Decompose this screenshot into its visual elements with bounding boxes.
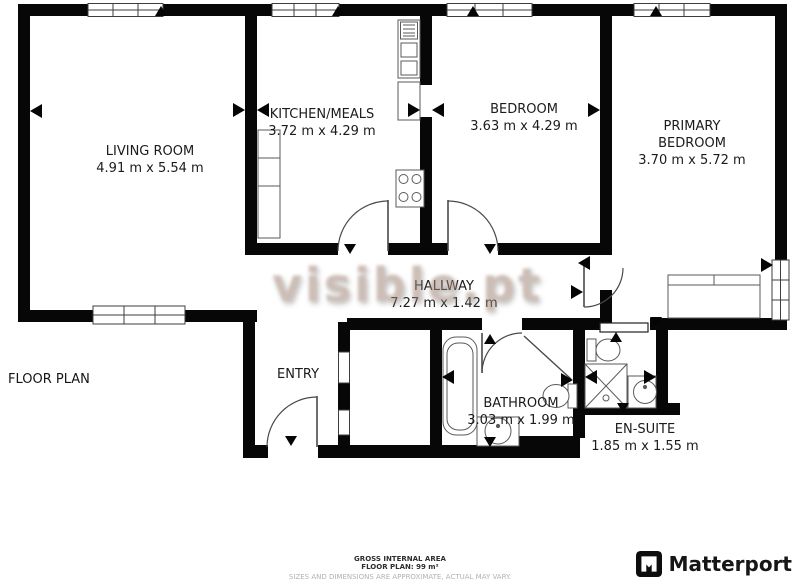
floor-plan-page: LIVING ROOM 4.91 m x 5.54 m KITCHEN/MEAL… — [0, 0, 800, 587]
room-name: PRIMARY BEDROOM — [658, 119, 726, 151]
room-name: EN-SUITE — [615, 422, 675, 437]
door-ensuite-slider — [600, 323, 648, 332]
floor-plan-area-value: FLOOR PLAN: 99 m² — [289, 563, 511, 571]
floor-plan-title: FLOOR PLAN — [8, 372, 90, 387]
disclaimer-text: SIZES AND DIMENSIONS ARE APPROXIMATE, AC… — [289, 573, 511, 582]
room-dims: 3.70 m x 5.72 m — [632, 152, 752, 169]
room-label-entry: ENTRY — [258, 366, 338, 383]
kitchen-sink-icon — [398, 20, 420, 78]
floor-plan-drawing — [0, 0, 800, 545]
door-ensuite-leaf — [524, 336, 571, 379]
window-primary-top — [634, 4, 710, 17]
window-bedroom-top — [447, 4, 532, 17]
room-label-bedroom: BEDROOM 3.63 m x 4.29 m — [444, 101, 604, 135]
door-bathroom — [482, 333, 571, 379]
room-dims: 3.63 m x 4.29 m — [444, 118, 604, 135]
room-dims: 7.27 m x 1.42 m — [364, 295, 524, 312]
room-dims: 4.91 m x 5.54 m — [70, 160, 230, 177]
room-label-primary-bedroom: PRIMARY BEDROOM 3.70 m x 5.72 m — [632, 118, 752, 169]
window-living-bottom — [93, 306, 185, 324]
matterport-icon — [636, 551, 662, 577]
ensuite-sink-icon — [628, 376, 657, 408]
wardrobe-icon — [668, 275, 760, 318]
room-dims: 1.85 m x 1.55 m — [565, 438, 725, 455]
room-label-en-suite: EN-SUITE 1.85 m x 1.55 m — [565, 421, 725, 455]
room-name: KITCHEN/MEALS — [270, 107, 375, 122]
ensuite-toilet-icon — [587, 339, 620, 361]
room-label-living-room: LIVING ROOM 4.91 m x 5.54 m — [70, 143, 230, 177]
room-name: ENTRY — [277, 367, 319, 382]
room-dims: 3.72 m x 4.29 m — [242, 123, 402, 140]
room-label-hallway: HALLWAY 7.27 m x 1.42 m — [364, 278, 524, 312]
window-living-top — [88, 4, 163, 17]
room-label-kitchen: KITCHEN/MEALS 3.72 m x 4.29 m — [242, 106, 402, 140]
door-kitchen — [338, 200, 388, 251]
matterport-wordmark: Matterport — [669, 552, 792, 576]
footer-notes: GROSS INTERNAL AREA FLOOR PLAN: 99 m² SI… — [289, 555, 511, 582]
door-bedroom — [448, 200, 498, 251]
gross-internal-area-label: GROSS INTERNAL AREA — [289, 555, 511, 563]
room-name: BEDROOM — [490, 102, 558, 117]
stove-icon — [396, 170, 424, 207]
window-kitchen-top — [272, 4, 339, 17]
room-name: HALLWAY — [414, 279, 474, 294]
matterport-logo: Matterport — [636, 551, 792, 577]
room-name: BATHROOM — [483, 396, 558, 411]
window-primary-right — [772, 260, 789, 320]
room-name: LIVING ROOM — [106, 144, 194, 159]
